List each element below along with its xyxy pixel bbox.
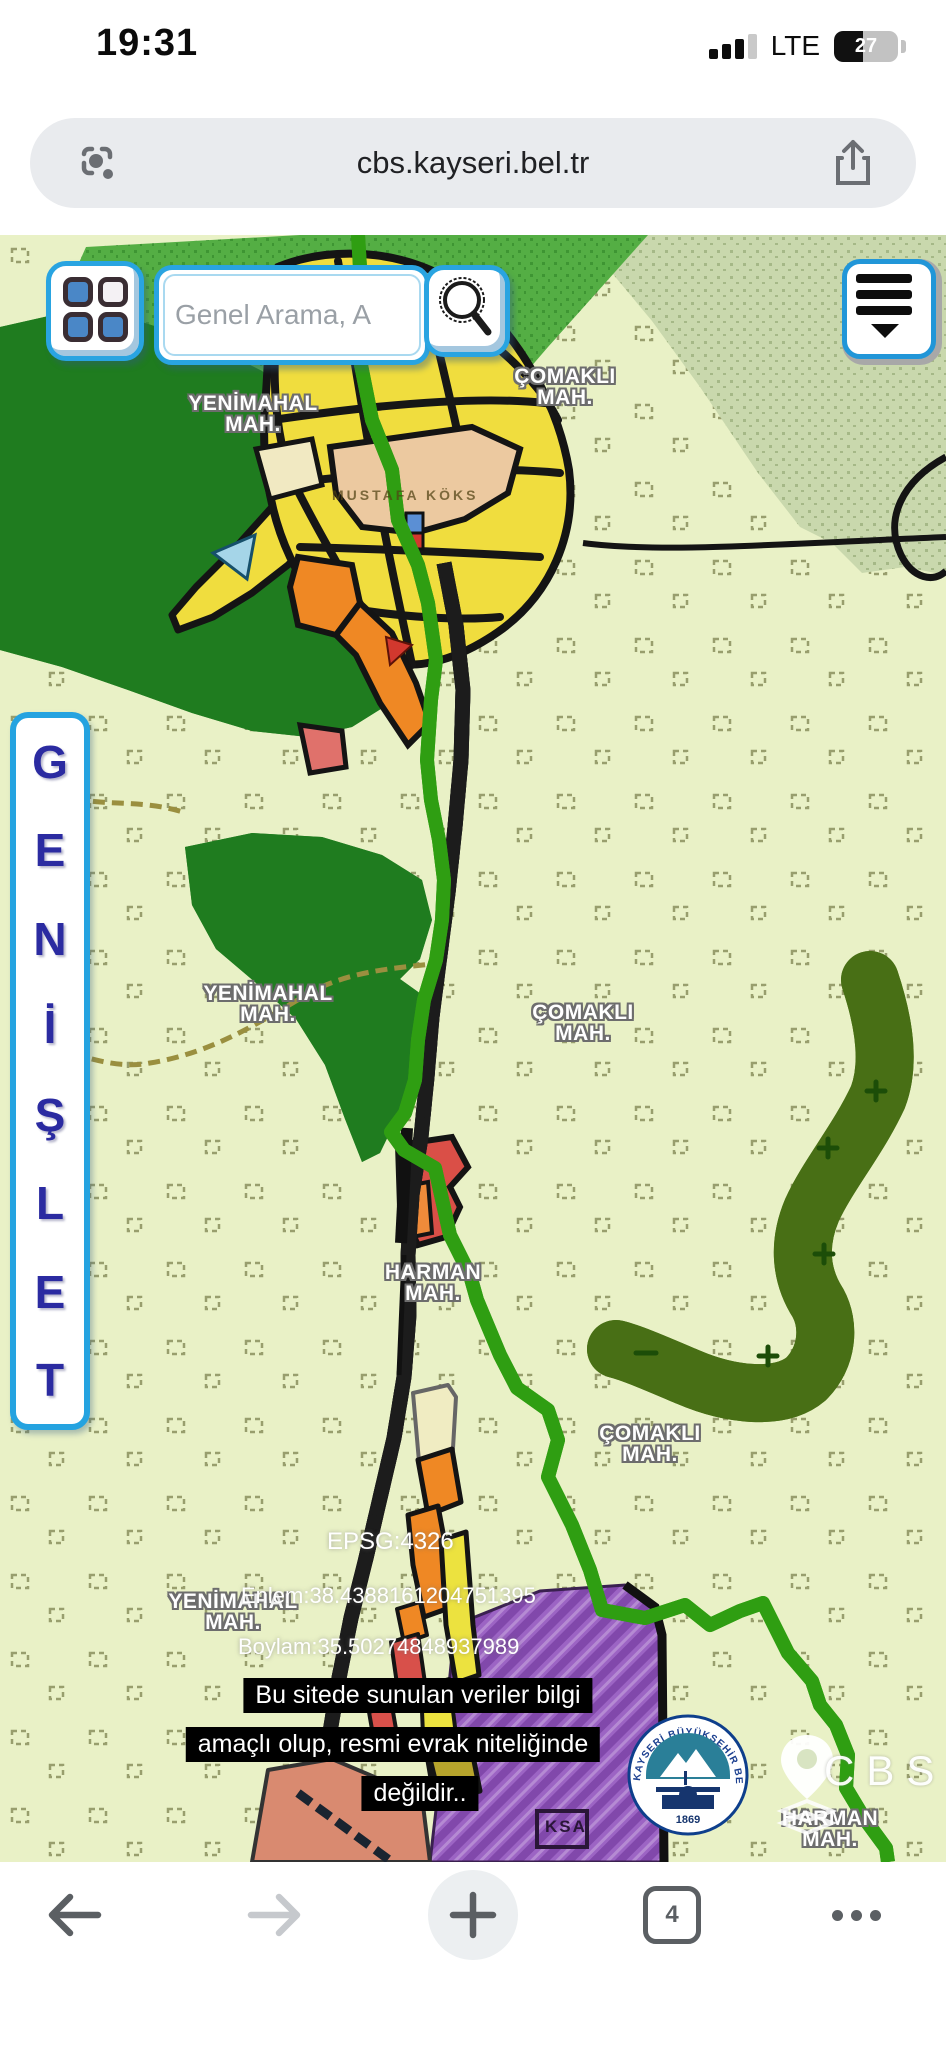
disclaimer-line-3: değildir.. bbox=[361, 1776, 478, 1811]
clock: 19:31 bbox=[96, 22, 198, 65]
district-label-yenimahal-top: YENİMAHALMAH. bbox=[188, 393, 317, 435]
network-type-label: LTE bbox=[771, 30, 820, 62]
parcel-code-label: KSA bbox=[545, 1817, 587, 1837]
phone-screen: 19:31 LTE 27 cbs.kayseri.bel.tr bbox=[0, 0, 946, 2048]
municipality-logo: KAYSERİ BÜYÜKŞEHİR BELEDİYESİ 1869 bbox=[626, 1713, 750, 1837]
browser-toolbar: 4 bbox=[0, 1862, 946, 2048]
more-menu-button[interactable] bbox=[811, 1870, 901, 1960]
logo-year: 1869 bbox=[676, 1814, 700, 1826]
search-field-wrap bbox=[154, 265, 430, 365]
battery-percent: 27 bbox=[834, 31, 898, 62]
district-label-comakli-bottom: ÇOMAKLIMAH. bbox=[599, 1423, 701, 1465]
menu-button[interactable] bbox=[842, 259, 942, 365]
latitude-label: Enlem:38.4388161204751395 bbox=[241, 1583, 536, 1609]
epsg-label: EPSG:4326 bbox=[327, 1528, 454, 1556]
disclaimer-line-1: Bu sitede sunulan veriler bilgi bbox=[243, 1678, 592, 1713]
expand-panel-button[interactable]: G E N İ Ş L E T bbox=[10, 712, 90, 1430]
district-label-harman-mid: HARMANMAH. bbox=[385, 1262, 481, 1304]
map-canvas[interactable] bbox=[0, 235, 946, 1862]
url-bar[interactable]: cbs.kayseri.bel.tr bbox=[30, 118, 916, 208]
status-bar: 19:31 LTE 27 bbox=[0, 0, 946, 100]
layers-grid-button[interactable] bbox=[46, 261, 144, 361]
url-text[interactable]: cbs.kayseri.bel.tr bbox=[30, 118, 916, 208]
hamburger-icon bbox=[856, 274, 912, 322]
chevron-down-icon bbox=[871, 324, 899, 338]
share-icon[interactable] bbox=[830, 138, 876, 188]
map-viewport[interactable]: YENİMAHALMAH. ÇOMAKLIMAH. YENİMAHALMAH. … bbox=[0, 235, 946, 1862]
cbs-watermark: CBS bbox=[824, 1747, 946, 1795]
plus-icon bbox=[448, 1890, 498, 1940]
district-label-comakli-top: ÇOMAKLIMAH. bbox=[514, 366, 616, 408]
more-dots-icon bbox=[832, 1910, 881, 1921]
back-arrow-icon bbox=[44, 1889, 106, 1941]
tab-switcher-button[interactable]: 4 bbox=[627, 1870, 717, 1960]
browser-url-row: cbs.kayseri.bel.tr bbox=[0, 100, 946, 235]
search-input[interactable] bbox=[163, 274, 421, 356]
search-button[interactable] bbox=[424, 265, 510, 357]
battery-icon: 27 bbox=[834, 31, 898, 62]
forward-arrow-icon bbox=[243, 1889, 305, 1941]
district-label-yenimahal-mid: YENİMAHALMAH. bbox=[203, 983, 332, 1025]
new-tab-button[interactable] bbox=[428, 1870, 518, 1960]
signal-strength-icon bbox=[709, 33, 757, 59]
disclaimer-line-2: amaçlı olup, resmi evrak niteliğinde bbox=[186, 1727, 600, 1762]
tab-count: 4 bbox=[643, 1886, 701, 1944]
district-label-comakli-mid: ÇOMAKLIMAH. bbox=[532, 1002, 634, 1044]
longitude-label: Boylam:35.50274848937989 bbox=[238, 1634, 519, 1660]
back-button[interactable] bbox=[30, 1870, 120, 1960]
grid-icon bbox=[63, 277, 128, 342]
battery-nub bbox=[901, 40, 906, 53]
school-area-label: MUSTAFA KÖKS bbox=[332, 487, 552, 503]
forward-button[interactable] bbox=[229, 1870, 319, 1960]
search-icon bbox=[432, 272, 498, 344]
